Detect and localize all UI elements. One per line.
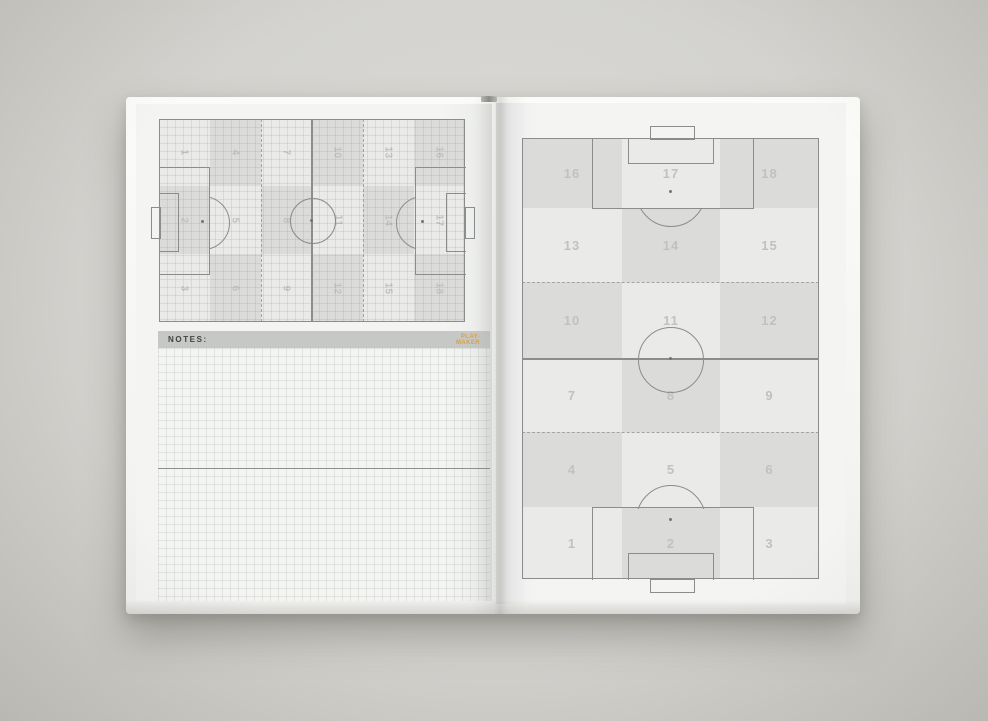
zone-number: 10: [564, 313, 580, 328]
third-line-top: [522, 282, 819, 283]
goal-right: [465, 207, 475, 239]
penalty-spot-bottom: [669, 518, 672, 521]
zone-number: 14: [383, 214, 394, 226]
zone-number: 3: [765, 536, 773, 551]
zone-number: 4: [230, 149, 241, 155]
zone-number: 12: [761, 313, 777, 328]
notes-grid-area: [158, 348, 490, 601]
zone-10: 10: [522, 282, 622, 359]
goal-area-left: [159, 193, 179, 252]
zone-number: 7: [281, 149, 292, 155]
zone-15: 15: [363, 254, 414, 322]
notebook-photo-scene: 123456789101112131415161718: [0, 0, 988, 721]
zone-10: 10: [312, 119, 363, 186]
zone-number: 10: [332, 146, 343, 158]
center-spot: [310, 219, 313, 222]
notes-divider-line: [158, 468, 490, 469]
goal-area-top: [628, 138, 714, 164]
center-circle: [638, 327, 704, 393]
zone-number: 11: [663, 313, 679, 328]
zone-7: 7: [261, 119, 312, 186]
notes-label: NOTES:: [168, 335, 208, 344]
notebook: 123456789101112131415161718: [126, 97, 860, 614]
zone-9: 9: [720, 359, 819, 432]
notes-header-bar: NOTES: PLAY- MAKER: [158, 331, 490, 348]
center-circle: [290, 198, 336, 244]
zone-number: 15: [761, 238, 777, 253]
spine-notch: [481, 96, 497, 102]
zone-number: 1: [179, 149, 190, 155]
pitch-portrait: 161718131415101112789456123: [522, 138, 819, 579]
zone-7: 7: [522, 359, 622, 432]
zone-13: 13: [522, 208, 622, 282]
third-line-right: [363, 119, 364, 322]
zone-number: 13: [564, 238, 580, 253]
zone-number: 14: [663, 238, 679, 253]
zone-number: 4: [568, 462, 576, 477]
goal-left: [151, 207, 161, 239]
zone-number: 5: [230, 217, 241, 223]
left-page: 123456789101112131415161718: [136, 103, 492, 601]
zone-number: 18: [434, 282, 445, 294]
zone-number: 6: [765, 462, 773, 477]
third-line-left: [261, 119, 262, 322]
zone-number: 5: [667, 462, 675, 477]
zone-12: 12: [720, 282, 819, 359]
goal-area-right: [446, 193, 466, 252]
goal-area-bottom: [628, 553, 714, 580]
third-line-bottom: [522, 432, 819, 433]
zone-4: 4: [522, 432, 622, 507]
goal-bottom: [650, 579, 695, 593]
zone-number: 7: [568, 388, 576, 403]
zone-number: 16: [564, 166, 580, 181]
center-spot: [669, 357, 672, 360]
zone-6: 6: [210, 254, 261, 322]
zone-15: 15: [720, 208, 819, 282]
zone-number: 9: [765, 388, 773, 403]
zone-number: 16: [434, 146, 445, 158]
penalty-spot-top: [669, 190, 672, 193]
pitch-landscape: 123456789101112131415161718: [159, 119, 465, 322]
zone-number: 18: [761, 166, 777, 181]
zone-4: 4: [210, 119, 261, 186]
zone-number: 3: [179, 285, 190, 291]
goal-top: [650, 126, 695, 140]
penalty-spot-left: [201, 220, 204, 223]
zone-number: 15: [383, 282, 394, 294]
zone-number: 9: [281, 285, 292, 291]
zone-number: 1: [568, 536, 576, 551]
zone-number: 12: [332, 282, 343, 294]
right-page: 161718131415101112789456123: [496, 103, 846, 604]
zone-number: 13: [383, 146, 394, 158]
zone-6: 6: [720, 432, 819, 507]
penalty-spot-right: [421, 220, 424, 223]
zone-9: 9: [261, 254, 312, 322]
zone-number: 6: [230, 285, 241, 291]
zone-12: 12: [312, 254, 363, 322]
brand-logo: PLAY- MAKER: [456, 334, 480, 346]
brand-logo-line2: MAKER: [456, 340, 480, 346]
zone-13: 13: [363, 119, 414, 186]
